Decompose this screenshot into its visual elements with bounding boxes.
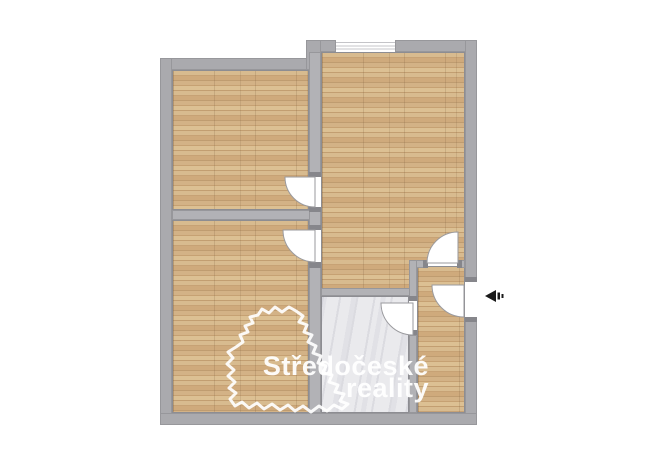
door-arc-room-bottom-left: [283, 230, 315, 262]
watermark: Středočeské reality: [263, 355, 429, 399]
door-arc-bathroom: [381, 303, 413, 335]
door-arc-room-top-left: [285, 177, 315, 207]
floorplan: Středočeské reality: [0, 0, 662, 468]
door-arc-entrance: [432, 285, 464, 317]
door-arc-living-hall: [427, 232, 458, 263]
entrance-arrow-icon: [485, 290, 504, 302]
